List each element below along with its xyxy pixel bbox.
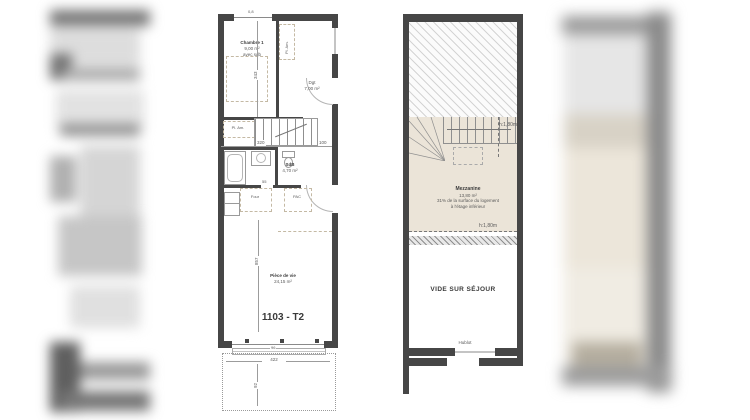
room-area: 7,00 m²	[304, 86, 319, 91]
blur-shape	[62, 68, 140, 81]
window-top	[234, 14, 272, 21]
unit-title: 1103 - T2	[233, 311, 333, 324]
dim-window-top: 0,8	[248, 9, 254, 14]
window-right-upper	[332, 28, 338, 54]
post	[280, 339, 284, 343]
wall-right-extension	[517, 356, 523, 366]
kitchen-counter-pac	[284, 188, 312, 212]
blur-shape	[562, 16, 647, 34]
dim-chambre-height: 343	[253, 70, 259, 80]
blurred-plan-left	[50, 6, 150, 414]
dim-stairs-right: 100	[318, 140, 328, 146]
blur-shape	[50, 156, 76, 202]
plan-lower-level: 0,8 Chambre 1 9,00 m² avec sdb Pl. Am. D…	[218, 14, 338, 420]
height-label-top: h:1,80m	[499, 122, 517, 129]
post	[315, 339, 319, 343]
room-note2: à l'étage inférieur	[451, 204, 485, 209]
appliance-four-label: Four	[240, 194, 270, 199]
closet-entry-label: Pl. Am.	[223, 125, 253, 130]
kitchen-boundary-dashed	[278, 231, 332, 232]
stairs-winder	[409, 117, 445, 161]
dim-living-height: 857	[254, 256, 260, 266]
stair-direction-line	[447, 129, 511, 130]
wall-right	[332, 14, 338, 348]
room-name: Pièce de vie	[270, 273, 296, 278]
dim-stairs: 320	[256, 140, 266, 146]
room-area: 13,80 m²	[459, 193, 477, 198]
blur-shape	[564, 148, 647, 268]
dim-terrace-width: 422	[262, 357, 286, 363]
dim-line-chambre	[257, 21, 258, 117]
hublot-label: Hublot	[445, 340, 485, 346]
wall-left	[403, 14, 409, 356]
dim-terrace-depth: 92	[253, 382, 259, 389]
wall-top	[403, 14, 523, 22]
blur-shape	[647, 12, 671, 392]
roof-hatch-area	[409, 22, 517, 118]
blurred-plan-right	[562, 6, 717, 414]
wall-left-extension	[403, 356, 409, 394]
room-label-chambre: Chambre 1 9,00 m² avec sdb	[230, 40, 274, 58]
bed-furniture	[226, 56, 268, 102]
dim-line-stairs	[221, 146, 332, 147]
parapet-left	[403, 358, 447, 366]
dim-kitchen: 55	[262, 179, 266, 184]
room-name: SdB	[286, 162, 295, 167]
height-label-bottom: h:1,80m	[479, 223, 497, 230]
room-label-dgt: Dgt 7,00 m²	[296, 80, 328, 92]
height-limit-line-bottom	[409, 231, 517, 232]
void-label: VIDE SUR SÉJOUR	[411, 286, 515, 294]
room-label-sdb: SdB 4,70 m²	[276, 162, 304, 174]
blur-shape	[80, 362, 150, 380]
post	[245, 339, 249, 343]
bathroom-wall-top	[221, 147, 278, 150]
washbasin-bowl	[256, 153, 266, 163]
room-name: Chambre 1	[240, 40, 263, 45]
blur-shape	[562, 366, 672, 386]
room-name: Dgt	[308, 80, 315, 85]
room-note1: 31% de la surface du logement	[437, 198, 499, 203]
blur-shape	[60, 391, 150, 411]
closet-top-label: Pl. Am.	[284, 41, 289, 54]
blur-shape	[572, 342, 642, 368]
dim-bay: 96	[270, 345, 276, 350]
room-label-mezzanine: Mezzanine 13,80 m² 31% de la surface du …	[423, 186, 513, 210]
room-label-piece-de-vie: Pièce de vie 24,15 m²	[248, 273, 318, 285]
blur-shape	[564, 34, 647, 114]
blur-shape	[56, 90, 144, 128]
blur-shape	[60, 124, 140, 136]
kitchen-counter-four	[240, 188, 272, 212]
plan-mezzanine-level: h:1,80m Mezzanine 13,80 m² 31% de la sur…	[403, 14, 523, 414]
room-area: 4,70 m²	[282, 168, 297, 173]
skylight-dashed	[453, 147, 483, 165]
kitchen-column	[224, 192, 240, 216]
hublot-window	[455, 348, 495, 356]
wall-right	[517, 14, 523, 356]
blur-shape	[70, 286, 140, 328]
floorplan-canvas: 0,8 Chambre 1 9,00 m² avec sdb Pl. Am. D…	[0, 0, 750, 420]
blur-shape	[80, 146, 140, 216]
blur-shape	[50, 10, 150, 26]
blur-shape	[58, 216, 142, 276]
bathtub-inner	[227, 154, 243, 182]
room-name: Mezzanine	[455, 186, 480, 192]
blur-shape	[564, 114, 647, 148]
room-area: 24,15 m²	[274, 279, 292, 284]
appliance-pac-label: PAC	[284, 194, 310, 199]
void-area	[409, 245, 517, 348]
mezzanine-edge-hatch	[409, 236, 517, 245]
